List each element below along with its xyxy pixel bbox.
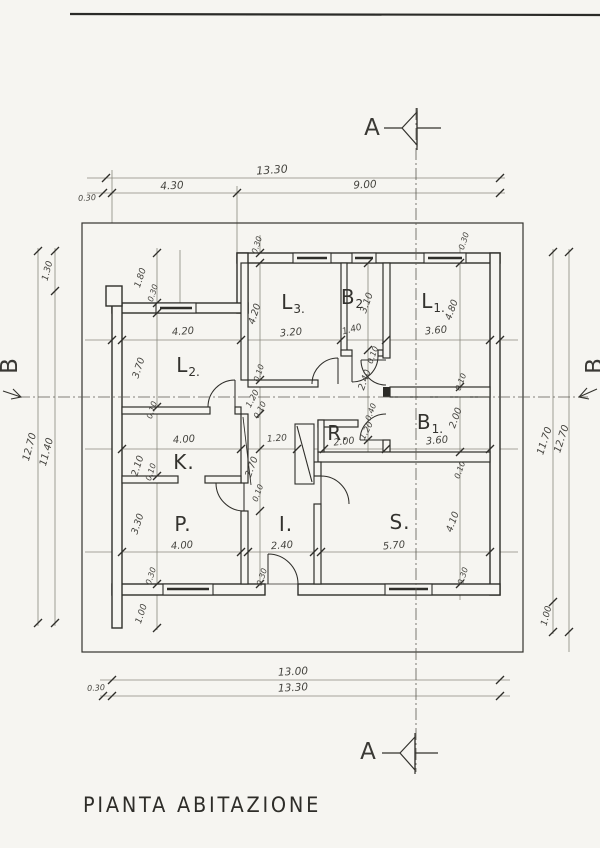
section-marker-a-top [384, 108, 441, 150]
section-arrow-triangle [400, 737, 415, 770]
section-arrow-triangle [402, 112, 417, 145]
floor-plan-drawing [0, 0, 600, 848]
section-letter-a-top: A [364, 115, 380, 141]
section-letter-a-bottom: A [360, 739, 376, 765]
wall-pier-solid [383, 387, 390, 397]
door-B1 [360, 414, 386, 440]
page-top-rule [70, 14, 600, 15]
scanned-floor-plan-page: 13.304.309.000.3013.0013.300.3012.7011.4… [0, 0, 600, 848]
section-letter-b-left: B [0, 358, 23, 374]
section-marker-a-bottom [382, 733, 438, 774]
door-P [216, 483, 244, 511]
door-L1 [361, 360, 386, 385]
door-entrance [268, 554, 298, 584]
door-L2 [208, 380, 235, 407]
section-letter-b-right: B [582, 358, 600, 374]
chimney-block [106, 286, 122, 306]
section-marker-b-left [3, 389, 21, 399]
door-S [321, 476, 349, 504]
flue-block [295, 424, 314, 484]
drawing-title: PIANTA ABITAZIONE [83, 793, 321, 817]
